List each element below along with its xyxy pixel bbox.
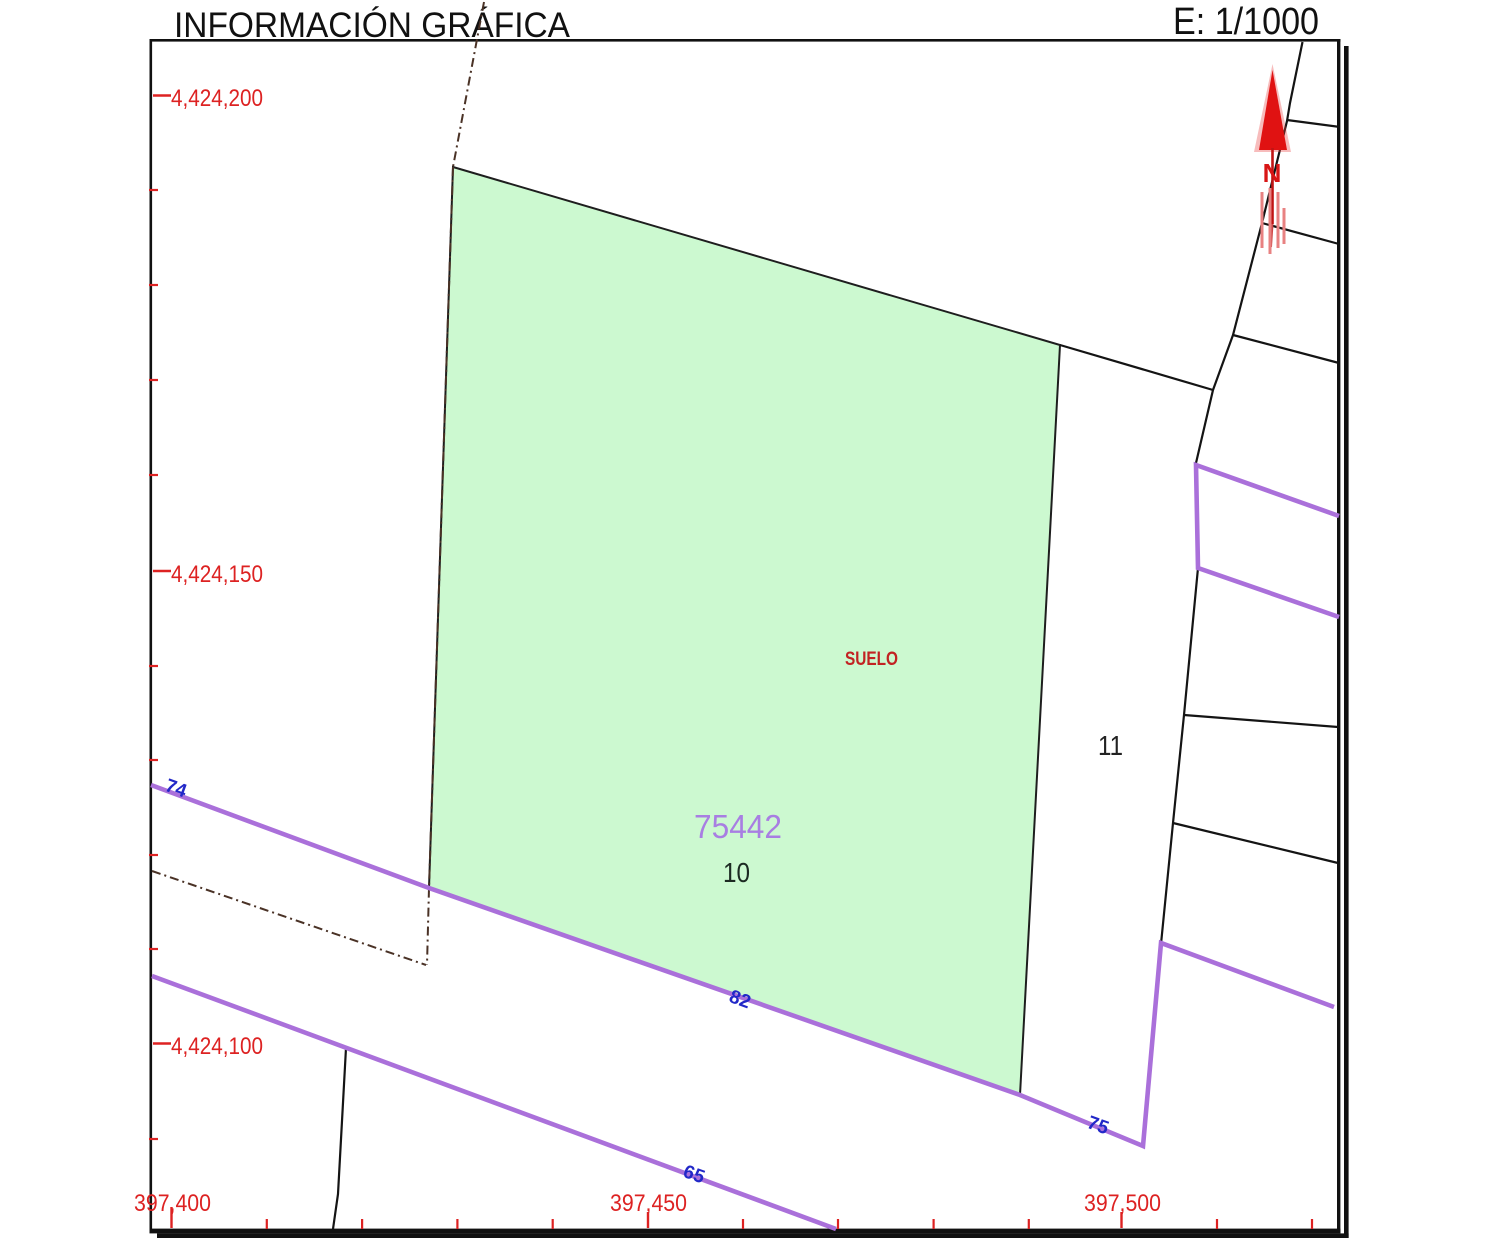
svg-text:397,500: 397,500 bbox=[1084, 1190, 1161, 1217]
svg-text:N: N bbox=[1263, 158, 1282, 188]
svg-text:4,424,200: 4,424,200 bbox=[171, 85, 263, 112]
svg-text:11: 11 bbox=[1098, 730, 1123, 761]
svg-text:E: 1/1000: E: 1/1000 bbox=[1173, 1, 1319, 43]
svg-text:4,424,100: 4,424,100 bbox=[171, 1033, 263, 1060]
svg-text:75: 75 bbox=[1084, 1112, 1111, 1139]
svg-text:75442: 75442 bbox=[694, 808, 782, 845]
svg-text:65: 65 bbox=[680, 1161, 707, 1188]
svg-text:397,400: 397,400 bbox=[134, 1190, 211, 1217]
svg-text:10: 10 bbox=[723, 857, 750, 888]
svg-text:397,450: 397,450 bbox=[610, 1190, 687, 1217]
svg-text:4,424,150: 4,424,150 bbox=[171, 561, 263, 588]
svg-text:SUELO: SUELO bbox=[845, 649, 898, 670]
